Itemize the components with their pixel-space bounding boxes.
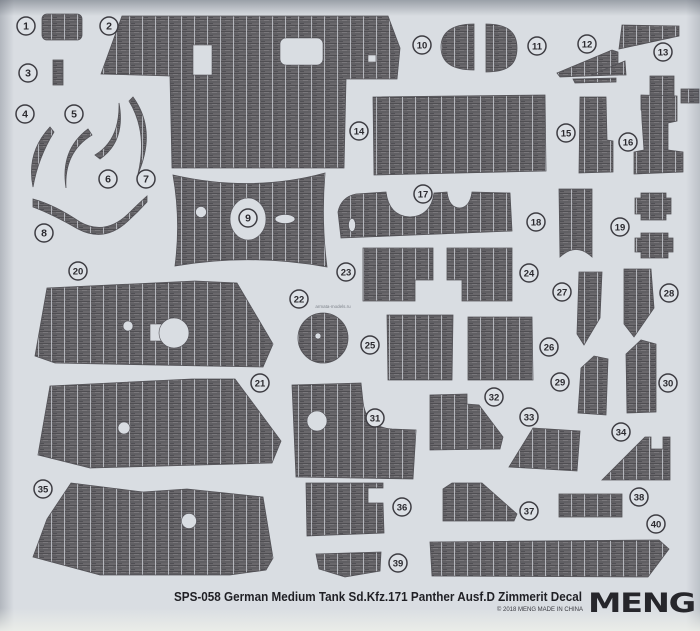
part-badge-number: 14 [354, 127, 365, 138]
decal-piece-1 [42, 14, 82, 40]
part-badge-number: 17 [418, 190, 429, 201]
part-badge-18: 18 [527, 213, 545, 231]
part-badge-number: 8 [41, 228, 47, 240]
part-badge-number: 35 [38, 485, 49, 496]
decal-piece-30 [626, 340, 656, 413]
decal-piece-3 [53, 60, 63, 85]
part-badge-35: 35 [34, 480, 52, 498]
part-badge-8: 8 [35, 224, 53, 242]
sheet-title: SPS-058 German Medium Tank Sd.Kfz.171 Pa… [174, 589, 582, 604]
part-badge-number: 9 [245, 213, 251, 225]
part-badge-17: 17 [414, 185, 432, 203]
decal-piece-21 [38, 379, 281, 468]
part-badge-26: 26 [540, 338, 558, 356]
part-badge-number: 4 [22, 109, 28, 121]
part-badge-38: 38 [630, 488, 648, 506]
part-badge-5: 5 [65, 105, 83, 123]
part-badge-number: 6 [105, 174, 111, 186]
part-badge-number: 13 [658, 48, 669, 59]
part-badge-12: 12 [578, 35, 596, 53]
hole-piece-21 [118, 422, 130, 434]
part-badge-32: 32 [485, 388, 503, 406]
part-badge-number: 38 [634, 493, 645, 504]
part-badge-28: 28 [660, 284, 678, 302]
part-badge-number: 25 [365, 341, 376, 352]
part-badge-22: 22 [290, 290, 308, 308]
right-shade [686, 0, 700, 631]
part-badge-number: 20 [73, 267, 84, 278]
part-badge-number: 15 [561, 129, 572, 140]
hole-piece-31 [307, 411, 327, 431]
part-badge-31: 31 [366, 409, 384, 427]
part-badge-6: 6 [99, 170, 117, 188]
part-badge-13: 13 [654, 43, 672, 61]
hole-piece-22 [315, 333, 321, 339]
hole-piece-2c [368, 55, 376, 62]
part-badge-4: 4 [16, 105, 34, 123]
part-badge-16: 16 [619, 133, 637, 151]
part-badge-number: 12 [582, 40, 593, 51]
part-badge-1: 1 [17, 17, 35, 35]
meng-logo: MENG [588, 588, 695, 619]
decal-piece-38 [559, 494, 622, 517]
part-badge-number: 7 [143, 174, 149, 186]
part-badge-number: 33 [524, 413, 535, 424]
part-badge-37: 37 [520, 502, 538, 520]
part-badge-7: 7 [137, 170, 155, 188]
part-badge-number: 37 [524, 507, 535, 518]
watermark-text: armata-models.ru [315, 304, 351, 309]
part-badge-9: 9 [239, 209, 257, 227]
decal-piece-40 [430, 540, 669, 577]
part-badge-3: 3 [19, 64, 37, 82]
decal-sheet-canvas: 1234567891011121314151617181920212223242… [0, 0, 700, 631]
part-badge-number: 24 [524, 269, 535, 280]
part-badge-number: 27 [557, 288, 568, 299]
part-badge-number: 21 [255, 379, 266, 390]
top-shade [0, 0, 700, 16]
part-badge-number: 29 [555, 378, 566, 389]
hole-piece-35 [182, 514, 197, 529]
part-badge-number: 28 [664, 289, 675, 300]
copyright-text: © 2018 MENG MADE IN CHINA [497, 606, 583, 613]
part-badge-29: 29 [551, 373, 569, 391]
part-badge-2: 2 [100, 17, 118, 35]
part-badge-23: 23 [337, 263, 355, 281]
part-badge-33: 33 [520, 408, 538, 426]
part-badge-number: 31 [370, 414, 381, 425]
hole-piece-9c [275, 215, 295, 224]
decal-sheet-photo: 1234567891011121314151617181920212223242… [0, 0, 700, 631]
part-badge-14: 14 [350, 122, 368, 140]
hole-piece-20c [159, 318, 189, 348]
part-badge-36: 36 [393, 498, 411, 516]
part-badge-number: 1 [23, 21, 29, 33]
part-badge-11: 11 [528, 37, 546, 55]
part-badge-number: 18 [531, 218, 542, 229]
decal-piece-26 [468, 317, 533, 380]
decal-piece-19b [635, 233, 673, 258]
decal-piece-11-sliver [573, 78, 616, 83]
decal-piece-14 [373, 95, 546, 175]
hole-piece-20a [123, 321, 133, 331]
left-shade [0, 0, 14, 631]
part-badge-20: 20 [69, 262, 87, 280]
part-badge-number: 26 [544, 343, 555, 354]
decal-piece-35 [33, 483, 273, 575]
part-badge-number: 40 [651, 520, 662, 531]
part-badge-number: 10 [417, 41, 428, 52]
part-badge-number: 30 [663, 379, 674, 390]
decal-piece-22 [298, 313, 348, 363]
part-badge-number: 23 [341, 268, 352, 279]
part-badge-25: 25 [361, 336, 379, 354]
part-badge-30: 30 [659, 374, 677, 392]
part-badge-number: 32 [489, 393, 500, 404]
hole-piece-2b [280, 38, 323, 65]
part-badge-number: 3 [25, 68, 31, 80]
part-badge-number: 16 [623, 138, 634, 149]
part-badge-number: 34 [616, 428, 627, 439]
part-badge-number: 36 [397, 503, 408, 514]
decal-piece-25 [387, 315, 453, 380]
part-badge-number: 22 [294, 295, 305, 306]
part-badge-10: 10 [413, 36, 431, 54]
part-badge-39: 39 [389, 554, 407, 572]
part-badge-40: 40 [647, 515, 665, 533]
part-badge-number: 19 [615, 223, 626, 234]
part-badge-27: 27 [553, 283, 571, 301]
hole-piece-9a [196, 207, 207, 218]
part-badge-34: 34 [612, 423, 630, 441]
part-badge-number: 2 [106, 21, 112, 33]
part-badge-number: 5 [71, 109, 77, 121]
decal-piece-18 [559, 189, 592, 257]
part-badge-number: 39 [393, 559, 404, 570]
part-badge-15: 15 [557, 124, 575, 142]
hole-piece-17 [349, 219, 356, 232]
part-badge-24: 24 [520, 264, 538, 282]
part-badge-number: 11 [532, 42, 543, 53]
hole-piece-2a [193, 45, 212, 75]
part-badge-21: 21 [251, 374, 269, 392]
part-badge-19: 19 [611, 218, 629, 236]
